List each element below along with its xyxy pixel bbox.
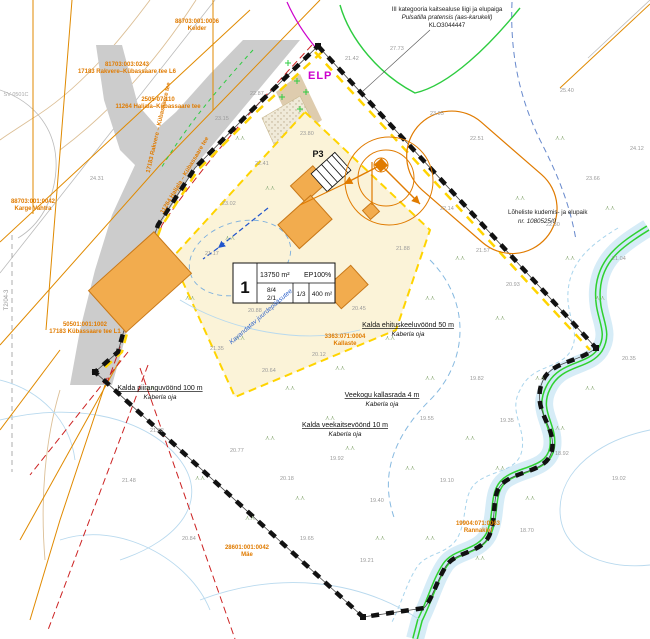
cadastral-name: Rannakivi [464,528,493,534]
cadastral-name: Karge Vahtra [14,206,52,212]
zone-watercourse: Kaberla oja [366,401,399,408]
grass-icon: ⋏⋏ [335,365,345,372]
stream-kaberla-oja [392,228,648,639]
spot-elevation: 23.05 [430,111,444,117]
detail-plan-map: 1 13750 m² EP100% 8/4 2/1 1/3 400 m² ELP… [0,0,650,639]
misc-label: T2/04-3 [4,289,10,310]
grass-icon: ⋏⋏ [405,465,415,472]
spot-elevation: 23.15 [215,116,229,122]
zone-title: Kalda veekaitsevöönd 10 m [302,422,388,429]
spot-elevation: 20.12 [312,352,326,358]
cadastral-number: 88703:001:0042 [11,199,56,205]
species-note-line3: KLO3044447 [429,22,466,29]
elp-label: ELP [308,70,332,82]
spot-elevation: 27.73 [390,46,404,52]
zone-watercourse: Kaberla oja [144,394,177,401]
misc-label: SV-0501C [3,92,28,98]
spot-elevation: 21.88 [396,246,410,252]
spot-elevation: 21.17 [205,251,219,257]
spot-elevation: 20.45 [352,306,366,312]
cadastral-number: 3363:071:0004 [325,334,366,340]
grass-icon: ⋏⋏ [295,495,305,502]
grass-icon: ⋏⋏ [495,315,505,322]
species-note-line2: Pulsatilla pratensis (aas-karukell) [402,14,493,21]
grass-icon: ⋏⋏ [455,255,465,262]
spot-elevation: 20.18 [280,476,294,482]
grass-icon: ⋏⋏ [595,295,605,302]
species-note: III kategooria kaitsealuse liigi ja elup… [392,6,503,29]
grass-icon: ⋏⋏ [185,295,195,302]
grass-icon: ⋏⋏ [605,205,615,212]
spot-elevation: 21.35 [210,346,224,352]
cadastral-number: 88703:001:0006 [175,19,220,25]
blue-dashed-line-right [512,2,576,240]
spot-elevation: 20.77 [230,448,244,454]
zone-title: Kalda piiranguvöönd 100 m [117,385,202,392]
grass-icon: ⋏⋏ [375,535,385,542]
spot-elevation: 19.65 [300,536,314,542]
cadastral-number: 81703:003:0243 [105,62,150,68]
spot-elevation: 24.12 [630,146,644,152]
grass-icon: ⋏⋏ [465,435,475,442]
cadastral-number: 19904:071:0063 [456,521,501,527]
cadastral-name: Kelder [188,26,207,32]
grass-icon: ⋏⋏ [585,385,595,392]
grass-icon: ⋏⋏ [425,535,435,542]
grass-icon: ⋏⋏ [515,195,525,202]
spot-elevation: 21.42 [345,56,359,62]
grass-icon: ⋏⋏ [345,445,355,452]
species-note-line1: III kategooria kaitsealuse liigi ja elup… [392,6,503,13]
grass-icon: ⋏⋏ [425,295,435,302]
spot-elevation: 19.35 [500,418,514,424]
grass-icon: ⋏⋏ [285,385,295,392]
grass-icon: ⋏⋏ [195,475,205,482]
cadastral-name: 17183 Kübassaare tee L1 [49,329,121,335]
spot-elevation: 22.30 [546,222,560,228]
spot-elevation: 19.02 [612,476,626,482]
grass-icon: ⋏⋏ [555,425,565,432]
spot-elevation: 23.02 [222,201,236,207]
map-canvas: 1 13750 m² EP100% 8/4 2/1 1/3 400 m² ELP… [0,0,650,639]
cadastral-number: 28601:001:0042 [225,545,270,551]
spot-elevation: 25.40 [560,88,574,94]
grass-icon: ⋏⋏ [525,495,535,502]
spot-elevation: 20.64 [262,368,276,374]
zone-watercourse: Kaberla oja [329,431,362,438]
p3-label: P3 [312,149,323,159]
spot-elevation: 21.48 [122,478,136,484]
spot-elevation: 19.10 [440,478,454,484]
cadastral-number: 2505-07.110 [141,97,175,103]
grass-icon: ⋏⋏ [565,255,575,262]
spot-elevation: 22.14 [440,206,454,212]
spot-elevation: 21.57 [476,248,490,254]
spot-elevation: 23.66 [586,176,600,182]
spot-elevation: 19.55 [420,416,434,422]
grass-icon: ⋏⋏ [495,465,505,472]
spot-elevation: 24.31 [90,176,104,182]
cadastral-name: Kallaste [333,341,357,347]
grass-icon: ⋏⋏ [535,375,545,382]
spot-elevation: 20.93 [506,282,520,288]
grass-icon: ⋏⋏ [265,185,275,192]
grass-icon: ⋏⋏ [235,135,245,142]
zone-watercourse: Kaberla oja [392,331,425,338]
plot-ratio: 1/3 [296,291,305,298]
grass-icon: ⋏⋏ [225,235,235,242]
spot-elevation: 19.82 [470,376,484,382]
plot-heights: 8/4 [267,287,276,294]
spot-elevation: 20.84 [182,536,196,542]
cadastral-name: 17183 Rakvere–Kübassaare tee L6 [78,69,177,75]
spot-elevation: 20.35 [622,356,636,362]
fish-note-line1: Lõheliste kudemis- ja elupaik [508,209,588,216]
spot-elevation: 22.87 [250,91,264,97]
zone-title: Kalda ehituskeeluvöönd 50 m [362,322,454,329]
plot-number: 1 [240,278,249,297]
spot-elevation: 22.51 [470,136,484,142]
spot-elevation: 18.92 [555,451,569,457]
spot-elevation: 21.02 [150,428,164,434]
spot-elevation: 22.41 [255,161,269,167]
grass-icon: ⋏⋏ [555,135,565,142]
spot-elevation: 19.40 [370,498,384,504]
spot-elevation: 21.04 [612,256,626,262]
spot-elevation: 23.80 [300,131,314,137]
plot-ep: EP100% [304,272,331,279]
plot-footprint: 400 m² [312,291,333,298]
grass-icon: ⋏⋏ [475,555,485,562]
grass-icon: ⋏⋏ [425,375,435,382]
spot-elevation: 19.92 [330,456,344,462]
grass-icon: ⋏⋏ [245,515,255,522]
spot-elevation: 18.70 [520,528,534,534]
cadastral-number: 50501:001:1002 [63,322,108,328]
spot-elevation: 19.21 [360,558,374,564]
plot-area: 13750 m² [260,272,290,279]
grass-icon: ⋏⋏ [325,415,335,422]
grass-icon: ⋏⋏ [265,435,275,442]
cadastral-name: Mäe [241,552,253,558]
cadastral-name: 11264 Haljala–Kübassaare tee [115,104,201,110]
zone-title: Veekogu kallasrada 4 m [345,392,420,399]
